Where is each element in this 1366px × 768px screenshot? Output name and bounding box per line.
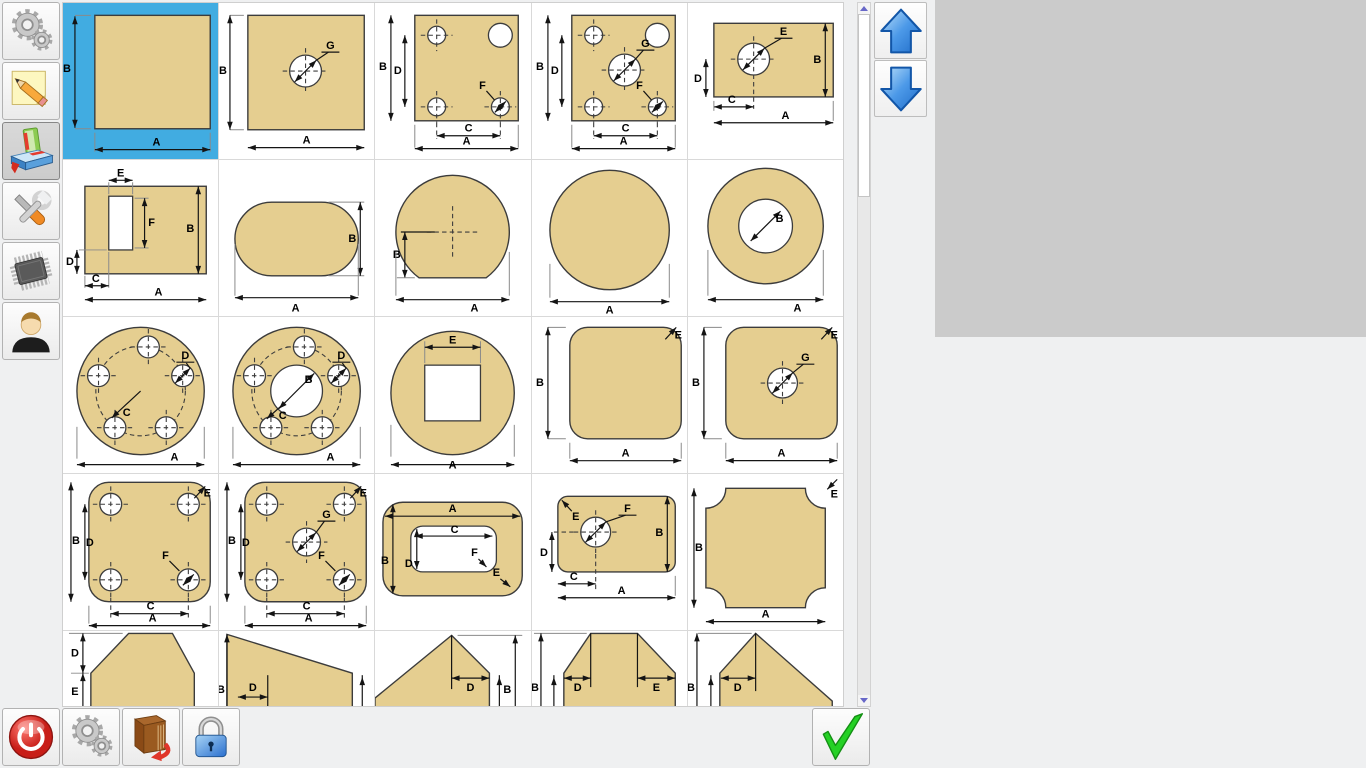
svg-text:E: E (71, 686, 78, 698)
svg-text:D: D (66, 256, 74, 268)
power-icon (6, 712, 56, 762)
svg-text:A: A (619, 136, 627, 148)
svg-text:E: E (493, 567, 500, 579)
svg-text:C: C (123, 407, 131, 419)
svg-text:D: D (467, 682, 475, 694)
shape-cell-rsq[interactable]: BAE (532, 317, 687, 473)
svg-text:D: D (249, 682, 257, 694)
shape-cell-circ5c[interactable]: BCDA (219, 317, 374, 473)
svg-text:E: E (204, 487, 211, 499)
svg-text:E: E (830, 488, 837, 500)
shape-cell-asym[interactable]: BD (688, 631, 843, 707)
svg-text:D: D (551, 65, 559, 77)
shape-cell-stadium[interactable]: BA (219, 160, 374, 316)
shape-cell-rsq4[interactable]: EBDFCA (63, 474, 218, 630)
lock-button[interactable] (182, 708, 240, 766)
tools-icon (6, 186, 56, 236)
svg-text:B: B (536, 61, 544, 73)
svg-text:D: D (242, 537, 250, 549)
svg-text:E: E (780, 26, 787, 38)
svg-text:A: A (449, 503, 457, 515)
shape-cell-circsq[interactable]: EA (375, 317, 530, 473)
svg-text:G: G (641, 38, 650, 50)
scrollbar-thumb[interactable] (858, 14, 870, 197)
scrollbar[interactable] (857, 2, 871, 707)
svg-text:D: D (734, 682, 742, 694)
svg-text:F: F (479, 80, 486, 92)
shape-cell-trapflat[interactable]: BDE (532, 631, 687, 707)
svg-text:C: C (451, 524, 459, 536)
svg-text:G: G (801, 352, 810, 364)
svg-text:A: A (303, 135, 311, 147)
shape-cell-house[interactable]: DE (63, 631, 218, 707)
gears-icon (66, 712, 116, 762)
svg-text:C: C (621, 123, 629, 135)
svg-text:B: B (813, 54, 821, 66)
sidebar-item-notes[interactable] (2, 62, 60, 120)
svg-text:E: E (360, 487, 367, 499)
svg-text:G: G (326, 40, 335, 52)
svg-text:B: B (186, 223, 194, 235)
svg-text:A: A (449, 460, 457, 472)
svg-text:C: C (465, 123, 473, 135)
shape-cell-sq4[interactable]: BDFCA (375, 3, 530, 159)
svg-text:C: C (569, 571, 577, 583)
svg-text:E: E (830, 329, 837, 341)
svg-text:B: B (305, 374, 313, 386)
svg-text:A: A (305, 613, 313, 625)
svg-text:F: F (624, 503, 631, 515)
settings-button[interactable] (62, 708, 120, 766)
svg-text:A: A (170, 452, 178, 464)
svg-text:B: B (381, 555, 389, 567)
shape-cell-sqconcave[interactable]: BAE (688, 474, 843, 630)
svg-text:E: E (117, 167, 124, 179)
parts-catalog-grid: BAGBABDFCAGBDFCAEBDCAEFBDCABABAABADCABCD… (62, 2, 844, 707)
svg-text:B: B (504, 684, 512, 696)
shape-cell-rtrap[interactable]: BD (219, 631, 374, 707)
svg-text:A: A (617, 585, 625, 597)
svg-text:A: A (153, 137, 161, 149)
shape-cell-ring[interactable]: BA (688, 160, 843, 316)
svg-text:D: D (86, 537, 94, 549)
sidebar-item-tools[interactable] (2, 182, 60, 240)
svg-text:E: E (572, 511, 579, 523)
user-icon (6, 306, 56, 356)
svg-text:B: B (219, 684, 225, 696)
shape-cell-rectslot[interactable]: EFBDCA (63, 160, 218, 316)
svg-text:C: C (279, 410, 287, 422)
chip-icon (6, 246, 56, 296)
shape-cell-rsq4c[interactable]: GEBDFCA (219, 474, 374, 630)
svg-text:B: B (532, 682, 539, 694)
svg-text:E: E (449, 334, 456, 346)
shape-cell-rectr1h[interactable]: EFBDCA (532, 474, 687, 630)
page-down-button[interactable] (874, 60, 927, 117)
books-icon (6, 126, 56, 176)
svg-text:A: A (327, 452, 335, 464)
svg-text:D: D (405, 558, 413, 570)
sidebar-item-user[interactable] (2, 302, 60, 360)
svg-text:A: A (793, 303, 801, 315)
scroll-up-icon[interactable] (858, 3, 870, 14)
svg-text:A: A (781, 110, 789, 122)
svg-text:A: A (471, 303, 479, 315)
svg-text:B: B (63, 63, 71, 75)
svg-text:A: A (777, 448, 785, 460)
svg-text:B: B (349, 233, 357, 245)
gears-icon (6, 6, 56, 56)
preview-panel (935, 0, 1366, 337)
svg-text:C: C (303, 601, 311, 613)
shape-cell-sq[interactable]: BA (63, 3, 218, 159)
svg-text:A: A (292, 303, 300, 315)
svg-text:D: D (338, 350, 346, 362)
svg-text:F: F (636, 80, 643, 92)
svg-text:D: D (181, 350, 189, 362)
svg-text:D: D (694, 73, 702, 85)
shape-cell-rsqh[interactable]: GBAE (688, 317, 843, 473)
svg-text:C: C (728, 94, 736, 106)
svg-text:G: G (322, 509, 331, 521)
svg-text:B: B (688, 682, 695, 694)
svg-text:A: A (149, 613, 157, 625)
check-icon (815, 709, 867, 765)
sidebar-item-hardware[interactable] (2, 242, 60, 300)
svg-text:F: F (318, 550, 325, 562)
svg-text:C: C (92, 273, 100, 285)
svg-text:A: A (761, 609, 769, 621)
shape-cell-rrecthole[interactable]: ACBDFE (375, 474, 530, 630)
shape-cell-sq4c[interactable]: GBDFCA (532, 3, 687, 159)
shape-cell-circle[interactable]: A (532, 160, 687, 316)
shape-cell-rect1h[interactable]: EBDCA (688, 3, 843, 159)
log-button[interactable] (122, 708, 180, 766)
confirm-button[interactable] (812, 708, 870, 766)
sidebar-item-settings[interactable] (2, 2, 60, 60)
svg-text:B: B (655, 527, 663, 539)
svg-text:B: B (775, 213, 783, 225)
svg-text:A: A (621, 448, 629, 460)
svg-text:B: B (228, 535, 236, 547)
svg-text:B: B (536, 377, 544, 389)
book-arrow-icon (126, 712, 176, 762)
svg-text:D: D (540, 547, 548, 559)
svg-text:A: A (605, 305, 613, 316)
shape-cell-sqh[interactable]: GBA (219, 3, 374, 159)
page-up-button[interactable] (874, 2, 927, 59)
svg-text:F: F (162, 550, 169, 562)
svg-text:E: E (674, 329, 681, 341)
svg-text:B: B (379, 61, 387, 73)
svg-text:B: B (393, 249, 401, 261)
svg-text:B: B (72, 535, 80, 547)
svg-text:D: D (394, 65, 402, 77)
svg-text:B: B (219, 65, 227, 77)
lock-icon (186, 712, 236, 762)
svg-text:E: E (652, 682, 659, 694)
sidebar-item-library[interactable] (2, 122, 60, 180)
svg-text:B: B (695, 542, 703, 554)
arrow-up-icon (878, 6, 924, 56)
svg-text:D: D (573, 682, 581, 694)
svg-text:F: F (472, 547, 479, 559)
svg-text:A: A (463, 136, 471, 148)
svg-text:D: D (71, 647, 79, 659)
scroll-down-icon[interactable] (858, 695, 870, 706)
shape-cell-peak[interactable]: DB (375, 631, 530, 707)
svg-text:B: B (692, 377, 700, 389)
svg-text:C: C (147, 601, 155, 613)
svg-text:A: A (155, 287, 163, 299)
power-button[interactable] (2, 708, 60, 766)
shape-cell-circflat[interactable]: BA (375, 160, 530, 316)
shape-cell-circ5[interactable]: DCA (63, 317, 218, 473)
note-pencil-icon (6, 66, 56, 116)
arrow-down-icon (878, 64, 924, 114)
svg-text:F: F (148, 217, 155, 229)
